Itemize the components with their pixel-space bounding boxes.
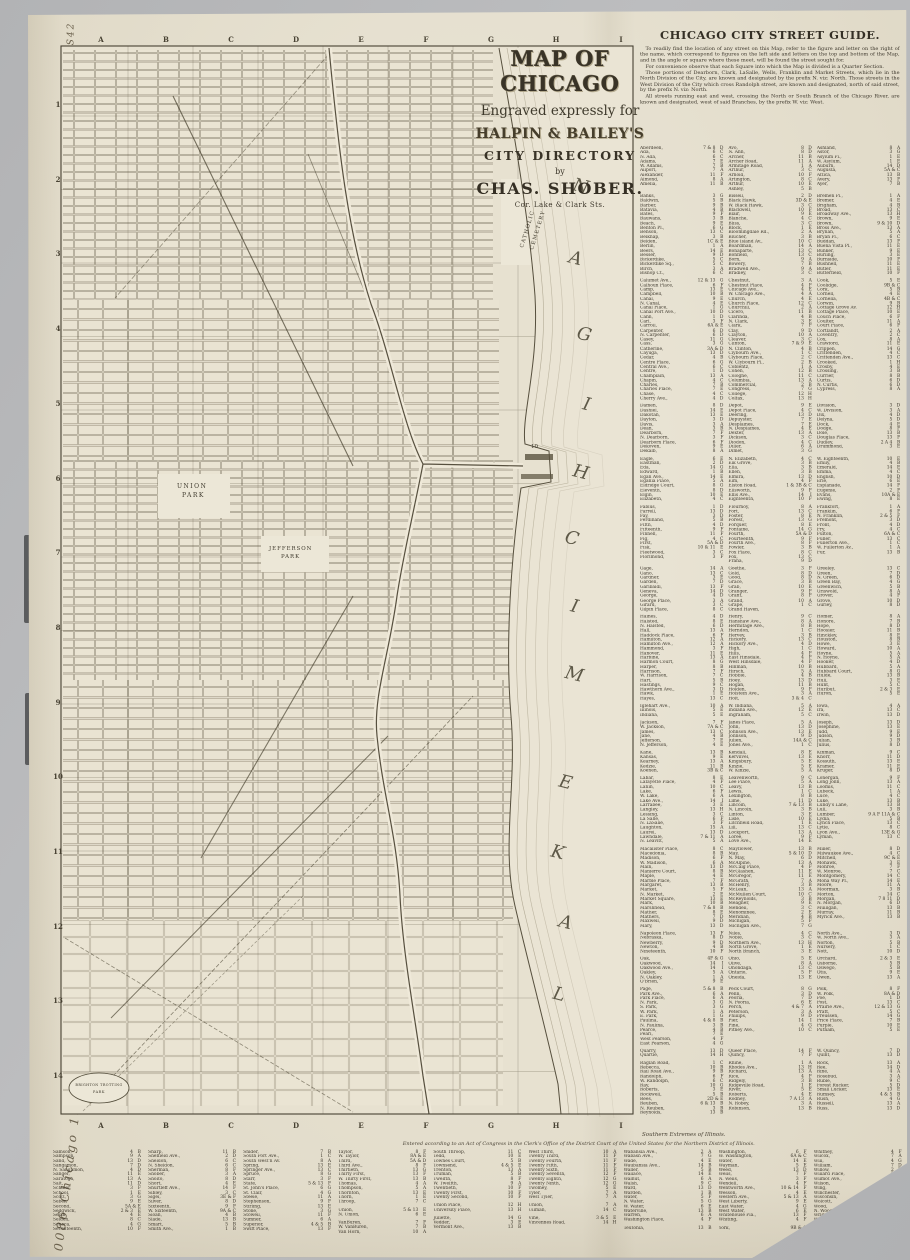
index-entry: Whiting,4F [719,1218,807,1223]
index-entry: Amelia,11B [640,182,723,187]
index-entry: Quartie,14H [640,1053,723,1058]
index-entry: Owen,13A [817,975,900,980]
bottom-index-panel: Entered according to an Act of Congress … [53,1142,901,1256]
street-index-groups: Aberdeen,7 & 8DAda,6CN. Ada,6CAdams,7EW.… [640,146,900,1115]
index-entry: Michigan Ave.,7G [728,924,811,929]
index-entry: Love Ave.,14E [728,840,811,845]
pier [525,454,553,460]
map-ruler-top: ABCDEFGHI [53,35,637,45]
engraved-line: Engraved expressly for [456,103,664,119]
index-entry: Florimond,3F [640,555,723,560]
index-entry: York,9B & C [719,1226,807,1231]
street-guide-panel: CHICAGO CITY STREET GUIDE. To readily fi… [640,28,900,1150]
index-entry: N. Jefferson,4E [640,743,723,748]
index-entry: Elizabeth,4C [640,498,723,503]
index-entry: Hayes,13C [640,697,723,702]
index-entry: Vincennes Road,14H [528,1221,616,1226]
index-entry: Frana,9D [728,559,811,564]
index-entry: N. Wood,3 & 4B [814,1209,902,1214]
guide-title: CHICAGO CITY STREET GUIDE. [640,28,900,42]
index-entry: Wright,9D [814,1213,902,1218]
index-entry: University Place,13H [433,1208,521,1213]
index-entry: Lyman,13C [817,835,900,840]
index-entry: Eighteenth,10F [728,498,811,503]
index-entry: Twenty Second,10F [433,1195,521,1200]
index-entry: North Branch,3E [728,950,811,955]
index-entry: Reynolds,13B [640,1111,723,1116]
index-entry: Ingraham,5C [728,713,811,718]
city-directory: CITY DIRECTORY [456,148,664,163]
city-blocks [63,50,513,1106]
index-entry: Indiana,5E [640,713,723,718]
by-line: by [456,167,664,176]
guide-intro: To readily find the location of any stre… [640,46,900,105]
bottom-index-columns: Samson,4BSampson,9ASand,13DSangamon,7DN.… [53,1150,902,1234]
guide-footnote: Southern Extremes of Illinois. [642,1132,726,1138]
index-entry: Dekalb,8A [640,449,723,454]
svg-text:BRIGHTON TROTTING: BRIGHTON TROTTING [75,1083,122,1087]
index-entry: Wrong,13D [814,1218,902,1223]
map-title: MAP OF CHICAGO [456,46,664,96]
index-entry: Ayer,7B [817,182,900,187]
index-entry: Ullman,14C [528,1208,616,1213]
index-entry: Throop,7C [338,1200,426,1205]
svg-text:PARK: PARK [93,1090,105,1094]
index-entry: Cypress,8A [817,388,900,393]
svg-text:PARK: PARK [182,492,205,499]
index-entry: Huron,5E [817,692,900,697]
index-entry: Colfax,13H [728,397,811,402]
index-entry: Dimet,3G [728,449,811,454]
index-entry: Washington Place,4F [624,1218,712,1223]
map-ruler-left: 1234567891011121314 [53,36,65,1132]
index-entry: Swift Place,13F [243,1227,331,1232]
index-entry: Vermont Ave.,13B [433,1225,521,1230]
index-entry: Quincy,7F [728,1053,811,1058]
index-entry: Mary,13D [640,924,723,929]
index-entry: Yorktown,13B [814,1226,902,1231]
index-entry: Holt,3 & 4C [728,697,811,702]
pier [521,474,553,479]
intro-paragraph: To readily find the location of any stre… [640,46,900,63]
index-entry: Grand Haven, [728,608,811,613]
index-entry: Koenen,3B & C [640,769,723,774]
index-entry: Fur,13B [817,550,900,555]
index-entry: Nineteenth,10F [640,950,723,955]
index-entry: Jones Ave.,1C [728,743,811,748]
brighton-trotting-park: BRIGHTON TROTTING PARK [69,1073,129,1103]
union-park-label: UNION [177,483,207,490]
svg-text:PARK: PARK [281,554,300,560]
publisher-address: Cor. Lake & Clark Sts. [456,201,664,209]
title-cartouche: MAP OF CHICAGO Engraved expressly for HA… [456,46,664,209]
index-entry: Robinson,13B [728,1106,811,1111]
index-entry: N. Leavitt,5A [640,840,723,845]
index-entry: Kruger,8D [817,769,900,774]
pier-number: 10 [531,444,538,450]
index-entry: Smith Ave.,1B [148,1227,236,1232]
index-entry: Nott,10D [817,950,900,955]
map-sheet: G4104 C4 1863 .S42 0086 Chicago 1863 [28,10,908,1258]
index-entry: Russ,13D [817,1106,900,1111]
index-entry: East Pearson,4G [640,1042,723,1047]
index-entry: Drummond,3E [817,445,900,450]
publisher-name: CHAS. SHOBER. [456,179,664,198]
index-entry: West Tyler,7A [528,1195,616,1200]
index-entry: Myrick Ave.,13B [817,915,900,920]
scanned-map-page: G4104 C4 1863 .S42 0086 Chicago 1863 [0,0,910,1260]
index-entry: Ashley,5B [728,187,811,192]
index-entry: Butterfield,10F [817,271,900,276]
index-entry: Irwin,13D [817,713,900,718]
index-entry: Bradley,3C [728,271,811,276]
index-entry: Gilpin Place,8C [640,608,723,613]
index-entry: Bishop Ct.,6C [640,271,723,276]
index-entry: Putnam,5E [817,1028,900,1033]
index-entry: O'Brien,9E [640,980,723,985]
jefferson-park-label: JEFFERSON [268,546,312,552]
halpin-baileys: HALPIN & BAILEY'S [456,126,664,142]
index-entry: Teutonia,13B [624,1226,712,1231]
index-entry: Ewing,8E [817,498,900,503]
index-entry: Seventeenth,10F [53,1227,141,1232]
copyright-caption: Entered according to an Act of Congress … [307,1141,850,1147]
index-entry: Pitney Ave.,10C [728,1028,811,1033]
index-entry: W. Kinzie,5A [728,769,811,774]
index-entry: N. Union,6E [338,1213,426,1218]
intro-paragraph: Those portions of Dearborn, Clark, LaSal… [640,70,900,93]
index-entry: Oneida,13E [728,975,811,980]
index-entry: Van Horn,10A [338,1230,426,1235]
index-entry: Cherry Ave.,4D [640,397,723,402]
index-entry: Julius,8D [817,743,900,748]
intro-paragraph: All streets running east and west, cross… [640,94,900,105]
index-entry: Quint,13D [817,1053,900,1058]
index-entry: Gurley,8D [817,603,900,608]
